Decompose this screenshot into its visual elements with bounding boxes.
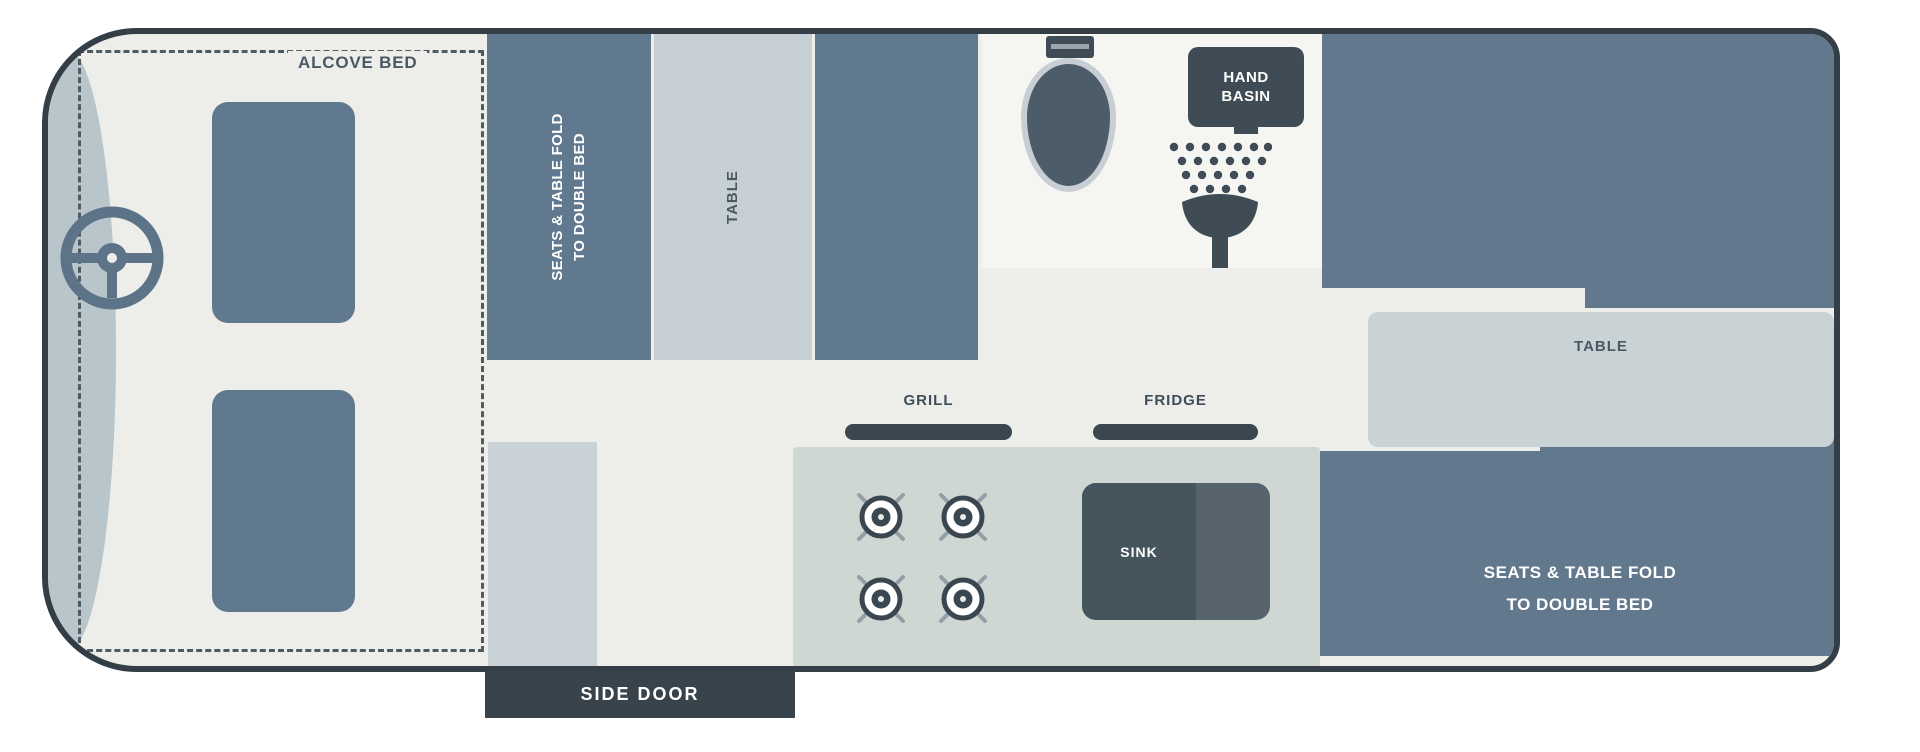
alcove-bed-label: ALCOVE BED	[288, 51, 427, 75]
floorplan-canvas: ALCOVE BED SEATS & TABLE FOLD TO DOUBLE …	[0, 0, 1920, 752]
rear-dinette-seats: SEATS & TABLE FOLD TO DOUBLE BED	[1318, 433, 1840, 656]
toilet-cistern	[1051, 44, 1089, 49]
cab-seat-top	[212, 102, 355, 323]
front-dinette-bench-right	[815, 34, 978, 360]
shower-icon	[1168, 140, 1272, 268]
fridge-unit	[1093, 424, 1258, 440]
hob-burners-icon	[830, 465, 1010, 635]
grill-unit	[845, 424, 1012, 440]
fridge-label: FRIDGE	[1093, 392, 1258, 409]
hand-basin: HAND BASIN	[1188, 47, 1304, 127]
vehicle-outline: ALCOVE BED SEATS & TABLE FOLD TO DOUBLE …	[42, 28, 1840, 672]
toilet-icon	[1046, 36, 1094, 58]
rear-table: TABLE	[1368, 312, 1834, 447]
side-door-label: SIDE DOOR	[580, 684, 699, 705]
rear-lounge-step	[1322, 288, 1585, 309]
sink-unit: SINK	[1082, 483, 1270, 620]
rear-dinette-label: SEATS & TABLE FOLD TO DOUBLE BED	[1318, 557, 1840, 621]
side-door: SIDE DOOR	[485, 671, 795, 718]
sink-label: SINK	[1120, 544, 1157, 560]
front-dinette-label: SEATS & TABLE FOLD TO DOUBLE BED	[547, 34, 591, 360]
rear-lounge-seats-top	[1322, 34, 1840, 308]
hand-basin-label-line2: BASIN	[1221, 87, 1270, 106]
cab-seat-bottom	[212, 390, 355, 612]
steering-wheel-icon	[57, 203, 167, 313]
rear-table-label: TABLE	[1368, 338, 1834, 355]
sink-bowl: SINK	[1082, 483, 1196, 620]
hand-basin-label-line1: HAND	[1223, 68, 1268, 87]
wardrobe-cabinet	[488, 442, 597, 666]
front-table-label: TABLE	[722, 34, 744, 360]
grill-label: GRILL	[845, 392, 1012, 409]
hand-basin-tap	[1234, 126, 1258, 134]
